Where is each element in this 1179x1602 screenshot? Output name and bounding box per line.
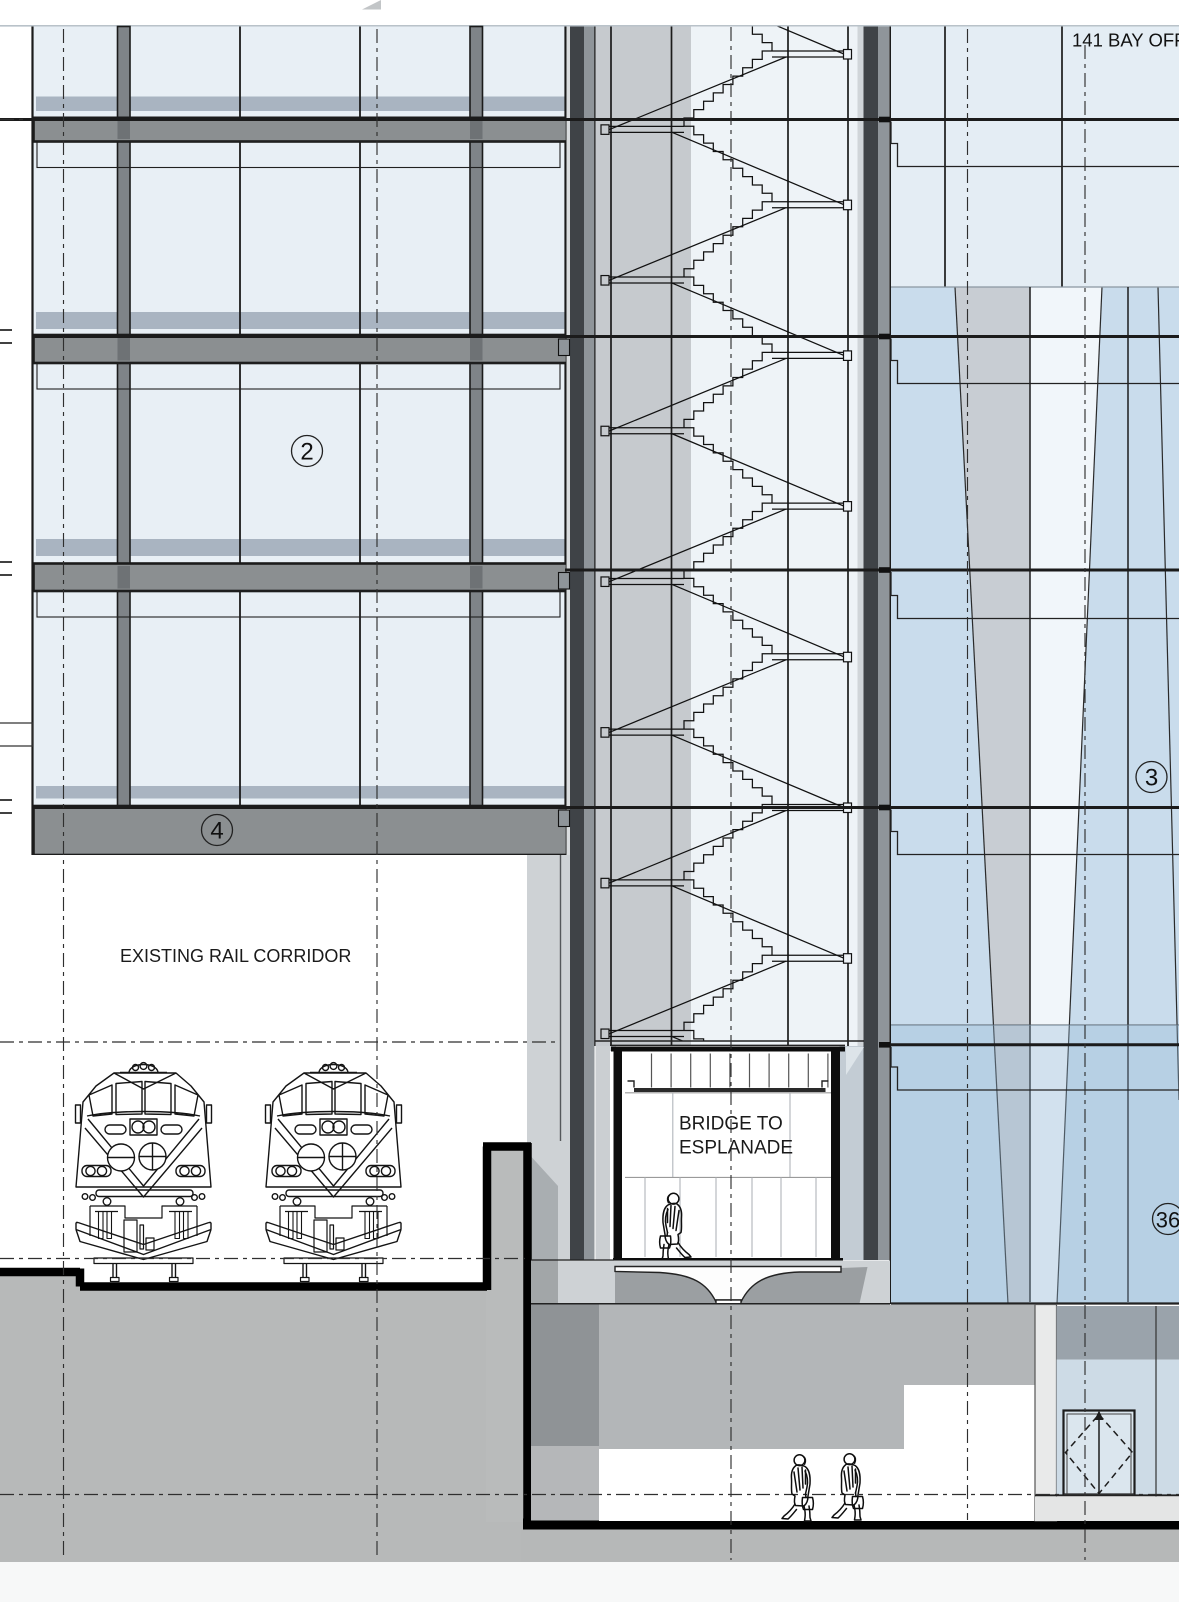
svg-text:141 BAY OFFI: 141 BAY OFFI bbox=[1072, 30, 1179, 51]
svg-text:ESPLANADE: ESPLANADE bbox=[679, 1138, 793, 1159]
svg-text:BRIDGE TO: BRIDGE TO bbox=[679, 1114, 783, 1135]
svg-text:36: 36 bbox=[1156, 1208, 1179, 1233]
svg-text:4: 4 bbox=[210, 818, 223, 845]
svg-text:3: 3 bbox=[1145, 765, 1158, 792]
svg-text:2: 2 bbox=[300, 439, 313, 466]
svg-text:EXISTING RAIL CORRIDOR: EXISTING RAIL CORRIDOR bbox=[120, 946, 351, 966]
